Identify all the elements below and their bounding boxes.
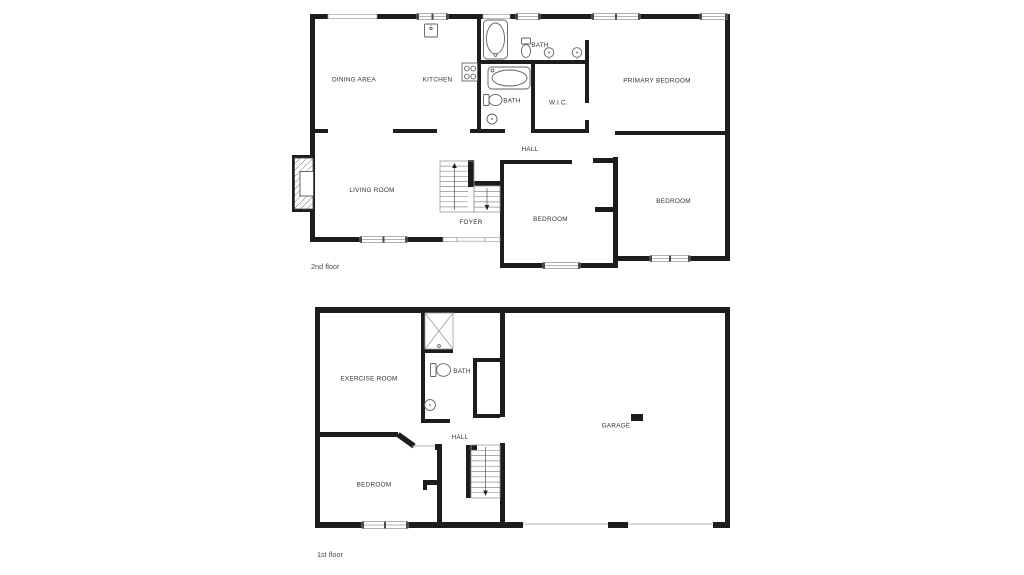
sink-icon bbox=[487, 114, 497, 124]
garage-marker bbox=[631, 414, 643, 421]
room-label-foyer: FOYER bbox=[459, 219, 482, 226]
toilet-icon bbox=[521, 38, 530, 57]
window bbox=[483, 14, 510, 18]
window bbox=[417, 14, 448, 20]
window bbox=[360, 237, 407, 243]
floor-plan-page: DINING AREA KITCHEN BATH BATH W.I.C. PRI… bbox=[0, 0, 1024, 575]
window bbox=[516, 14, 540, 20]
sink-icon bbox=[425, 400, 436, 411]
window bbox=[650, 256, 690, 262]
room-label-bedroom: BEDROOM bbox=[357, 482, 392, 489]
second-floor-walls bbox=[310, 14, 730, 268]
room-label-hall: HALL bbox=[522, 146, 539, 153]
first-floor-fixtures bbox=[425, 313, 643, 421]
second-floor-fixtures bbox=[425, 20, 582, 124]
bathtub-icon bbox=[484, 20, 508, 59]
room-label-garage: GARAGE bbox=[602, 423, 631, 430]
room-label-wic: W.I.C. bbox=[549, 100, 568, 107]
second-floor-plan: DINING AREA KITCHEN BATH BATH W.I.C. PRI… bbox=[292, 14, 730, 271]
room-label-bath: BATH bbox=[453, 368, 471, 375]
room-label-bath-upper: BATH bbox=[531, 42, 549, 49]
bathtub-icon bbox=[488, 67, 530, 89]
window bbox=[362, 522, 408, 529]
entry-opening bbox=[457, 238, 485, 241]
floor-label-2nd: 2nd floor bbox=[311, 262, 340, 271]
floor-plan-image: DINING AREA KITCHEN BATH BATH W.I.C. PRI… bbox=[0, 0, 1024, 575]
window bbox=[485, 237, 500, 241]
window bbox=[592, 14, 640, 20]
first-floor-plan: EXERCISE ROOM BATH HALL BEDROOM GARAGE 1… bbox=[315, 307, 730, 559]
window bbox=[700, 14, 727, 20]
sink-icon bbox=[572, 48, 582, 60]
staircase-icon bbox=[471, 445, 500, 498]
toilet-icon bbox=[484, 94, 503, 105]
window bbox=[328, 14, 377, 18]
room-label-bath-lower: BATH bbox=[503, 98, 521, 105]
room-label-dining-area: DINING AREA bbox=[332, 77, 376, 84]
room-label-bedroom-mid: BEDROOM bbox=[533, 216, 568, 223]
floor-label-1st: 1st floor bbox=[317, 550, 344, 559]
room-label-exercise-room: EXERCISE ROOM bbox=[340, 376, 397, 383]
sink-icon bbox=[544, 48, 554, 60]
window bbox=[443, 237, 457, 241]
shower-icon bbox=[425, 313, 453, 349]
stove-icon bbox=[462, 63, 478, 81]
room-label-living-room: LIVING ROOM bbox=[349, 187, 394, 194]
fireplace-icon bbox=[292, 155, 315, 212]
window bbox=[543, 263, 580, 269]
first-floor-walls bbox=[315, 307, 730, 528]
room-label-bedroom-right: BEDROOM bbox=[656, 198, 691, 205]
kitchen-sink-icon bbox=[425, 24, 438, 37]
room-label-hall: HALL bbox=[452, 434, 469, 441]
room-label-kitchen: KITCHEN bbox=[423, 77, 453, 84]
toilet-icon bbox=[431, 364, 451, 377]
room-label-primary-bedroom: PRIMARY BEDROOM bbox=[623, 78, 690, 85]
